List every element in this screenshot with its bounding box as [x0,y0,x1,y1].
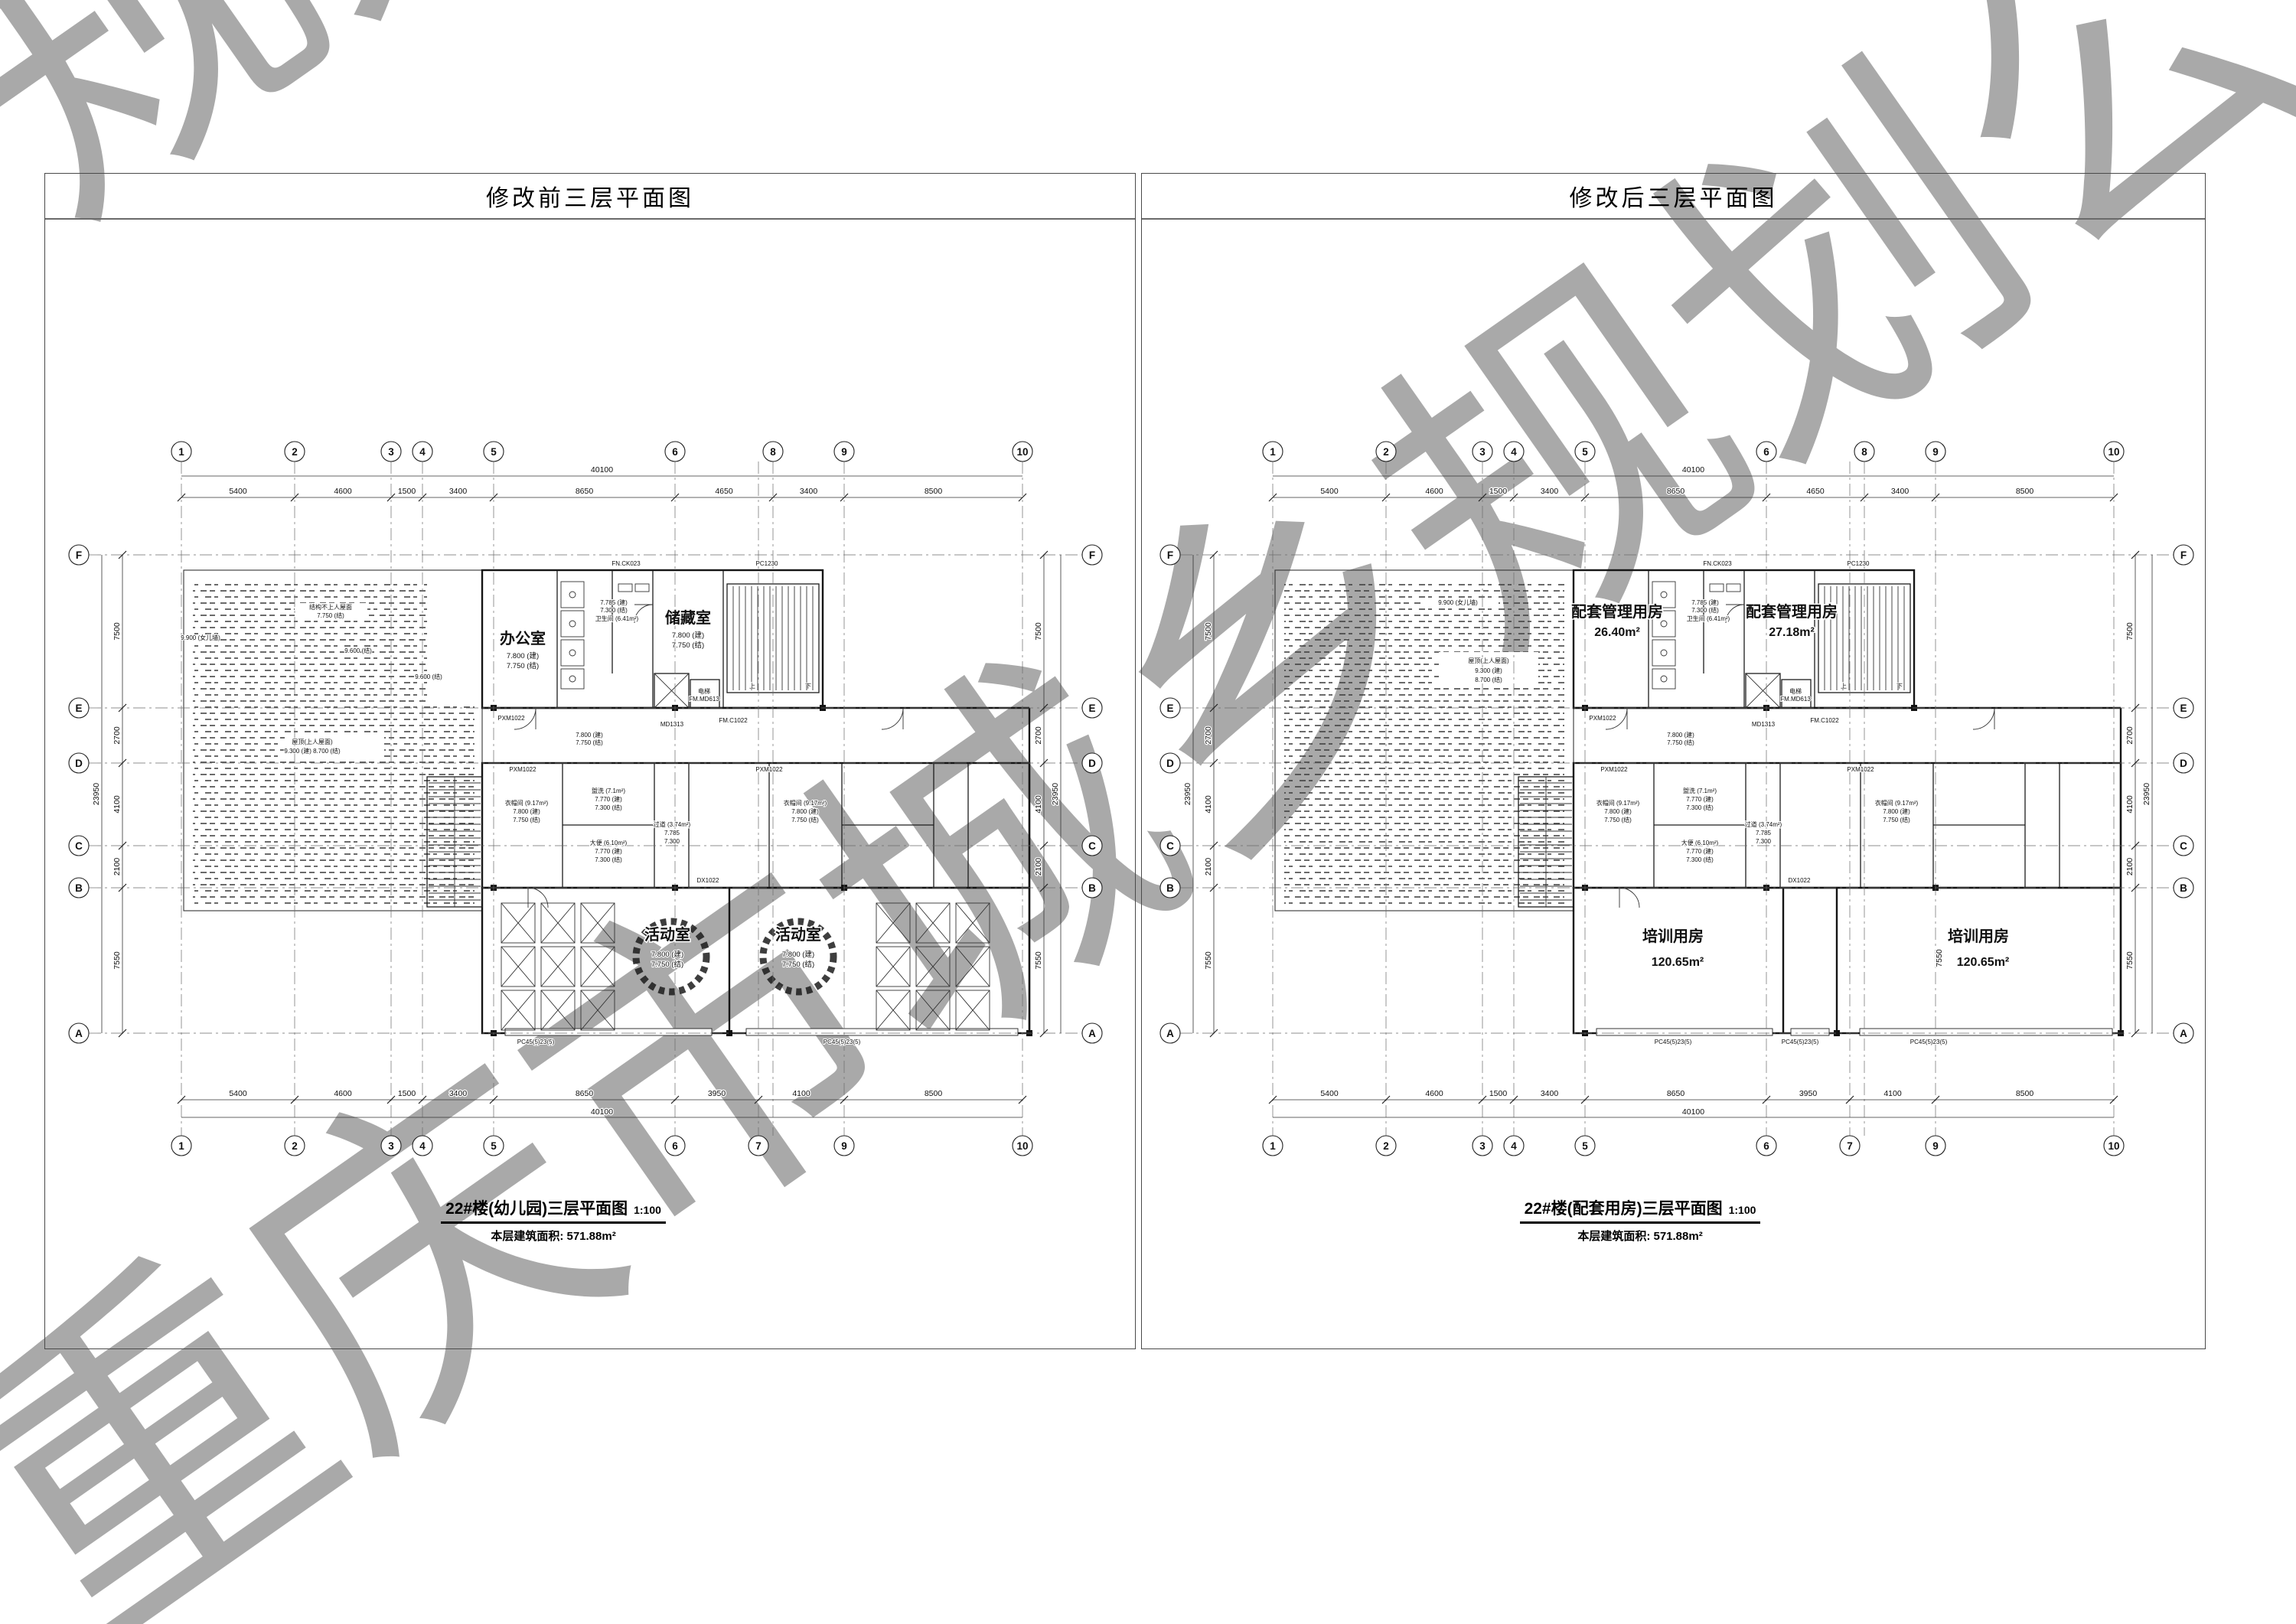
caption-after-area: 本层建筑面积: 571.88m² [1514,1228,1766,1244]
caption-before-area: 本层建筑面积: 571.88m² [427,1228,680,1244]
caption-after-scale: 1:100 [1729,1204,1756,1216]
caption-after: 22#楼(配套用房)三层平面图1:100 本层建筑面积: 571.88m² [1514,1196,1766,1244]
panel-after-title: 修改后三层平面图 [1142,174,2205,220]
caption-before-name: 22#楼(幼儿园)三层平面图 [445,1200,628,1218]
sheet: 重庆市城乡规划公示用图 重庆市城乡规划公示用图 [0,0,2296,1624]
caption-after-name: 22#楼(配套用房)三层平面图 [1525,1200,1723,1218]
panel-before-title: 修改前三层平面图 [45,174,1135,220]
caption-before-scale: 1:100 [634,1204,661,1216]
caption-before: 22#楼(幼儿园)三层平面图1:100 本层建筑面积: 571.88m² [427,1196,680,1244]
panel-after: 修改后三层平面图 [1141,173,2206,1349]
panel-before: 修改前三层平面图 [44,173,1136,1349]
